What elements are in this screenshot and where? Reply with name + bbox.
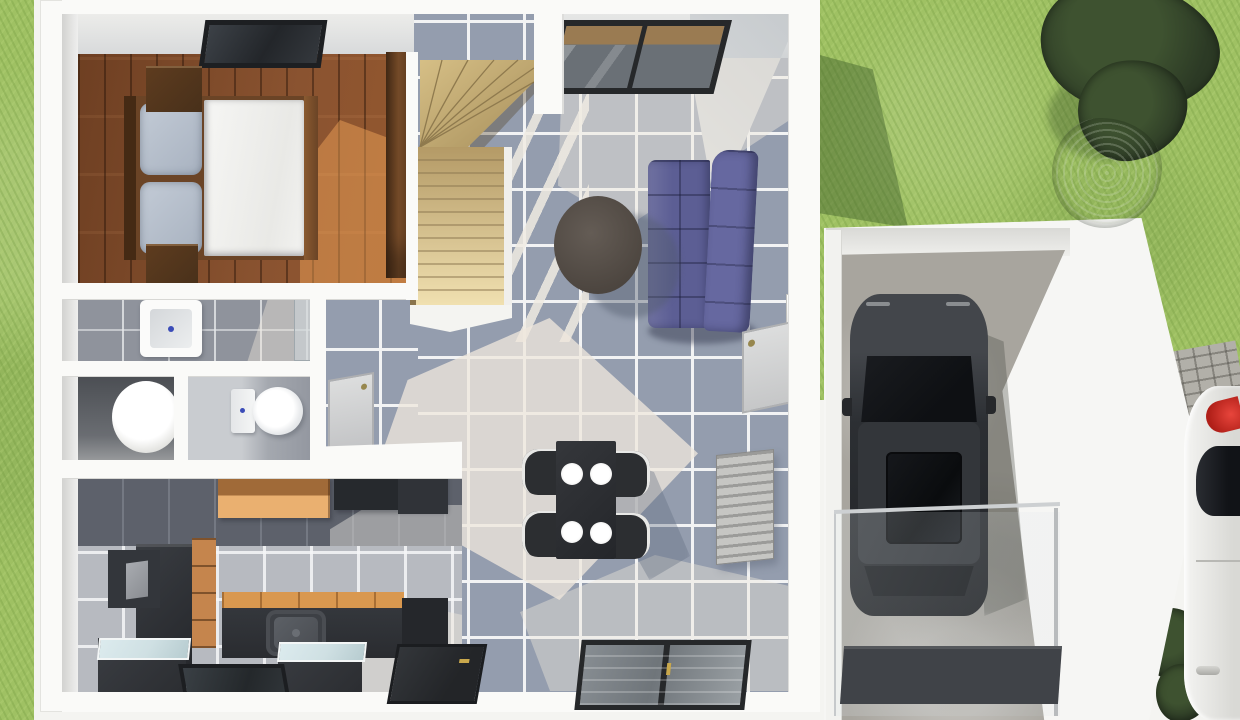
toilet-flush-button: [240, 408, 245, 413]
wall-box-opening: [126, 560, 148, 599]
dining-chair-se: [614, 513, 650, 559]
bed-pillow-top: [140, 103, 202, 175]
sink-drain: [292, 629, 300, 637]
appliance-glass-top-right: [277, 642, 367, 662]
white-car-door-handle: [1196, 666, 1220, 675]
plate-3: [561, 521, 583, 543]
stair-landing: [410, 305, 512, 332]
sofa-seat-seam: [679, 160, 681, 328]
white-car-rear-window: [1196, 446, 1240, 516]
nightstand-bottom: [146, 244, 198, 288]
white-car-door-seam: [1196, 560, 1240, 562]
dining-chair-nw: [522, 449, 558, 495]
dining-chair-sw: [522, 511, 558, 557]
washbasin-drain: [168, 326, 174, 332]
car-roof-rail-right: [946, 302, 970, 306]
wall-utility-wc: [174, 374, 188, 462]
front-window-reflections: [580, 645, 746, 705]
car-roof-rail-left: [866, 302, 890, 306]
appliance-cube-left: [98, 638, 186, 696]
wall-cabinet-wood: [218, 476, 330, 518]
car-windshield: [860, 356, 978, 422]
wall-box-dark: [108, 550, 160, 608]
wall-radiator: [716, 449, 774, 565]
lawn-left-strip: [0, 0, 34, 720]
car-mirror-right: [986, 396, 996, 414]
front-door: [387, 644, 488, 704]
door-handle: [748, 339, 755, 347]
stair-stringer-right: [504, 147, 512, 309]
skylight-window: [199, 20, 328, 68]
car-mirror-left: [842, 398, 852, 416]
floor-plan-scene: [0, 0, 1240, 720]
nightstand-top: [146, 66, 202, 112]
wall-face-west: [62, 14, 78, 692]
wall-bathroom-south: [62, 361, 324, 376]
coffee-table: [554, 196, 642, 294]
straight-flight: [416, 147, 504, 305]
wall-east: [788, 14, 820, 692]
front-door-handle: [459, 659, 470, 663]
hallway-door-handle: [361, 383, 367, 390]
plate-2: [590, 463, 612, 485]
toilet-bowl: [253, 387, 303, 435]
wall-bedroom-stairs: [406, 52, 418, 300]
staircase: [406, 52, 546, 332]
bed-headboard: [124, 96, 136, 260]
drawer-unit-wood: [192, 538, 216, 648]
wall-bedroom-south: [62, 283, 414, 299]
wall-north: [62, 0, 820, 14]
bed-duvet: [204, 100, 304, 256]
sliding-window-north: [544, 20, 732, 94]
dining-chair-ne: [614, 451, 650, 497]
front-double-window: [574, 640, 751, 710]
washbasin: [140, 300, 202, 357]
stair-north-wall: [534, 14, 564, 114]
sofa-backrest: [703, 149, 758, 333]
garage-floor-mat: [840, 646, 1062, 704]
window-glass-streak: [551, 45, 720, 88]
plate-1: [561, 463, 583, 485]
toilet-cistern: [231, 389, 255, 433]
appliance-glass-top-left: [97, 638, 191, 660]
round-bathtub: [112, 381, 180, 453]
appliance-cube-right: [278, 642, 362, 696]
plate-4: [590, 522, 612, 544]
wall-wc-hall: [310, 283, 326, 462]
bed-foot-rail: [304, 96, 318, 260]
peninsula-cabinet-dark: [398, 474, 448, 514]
